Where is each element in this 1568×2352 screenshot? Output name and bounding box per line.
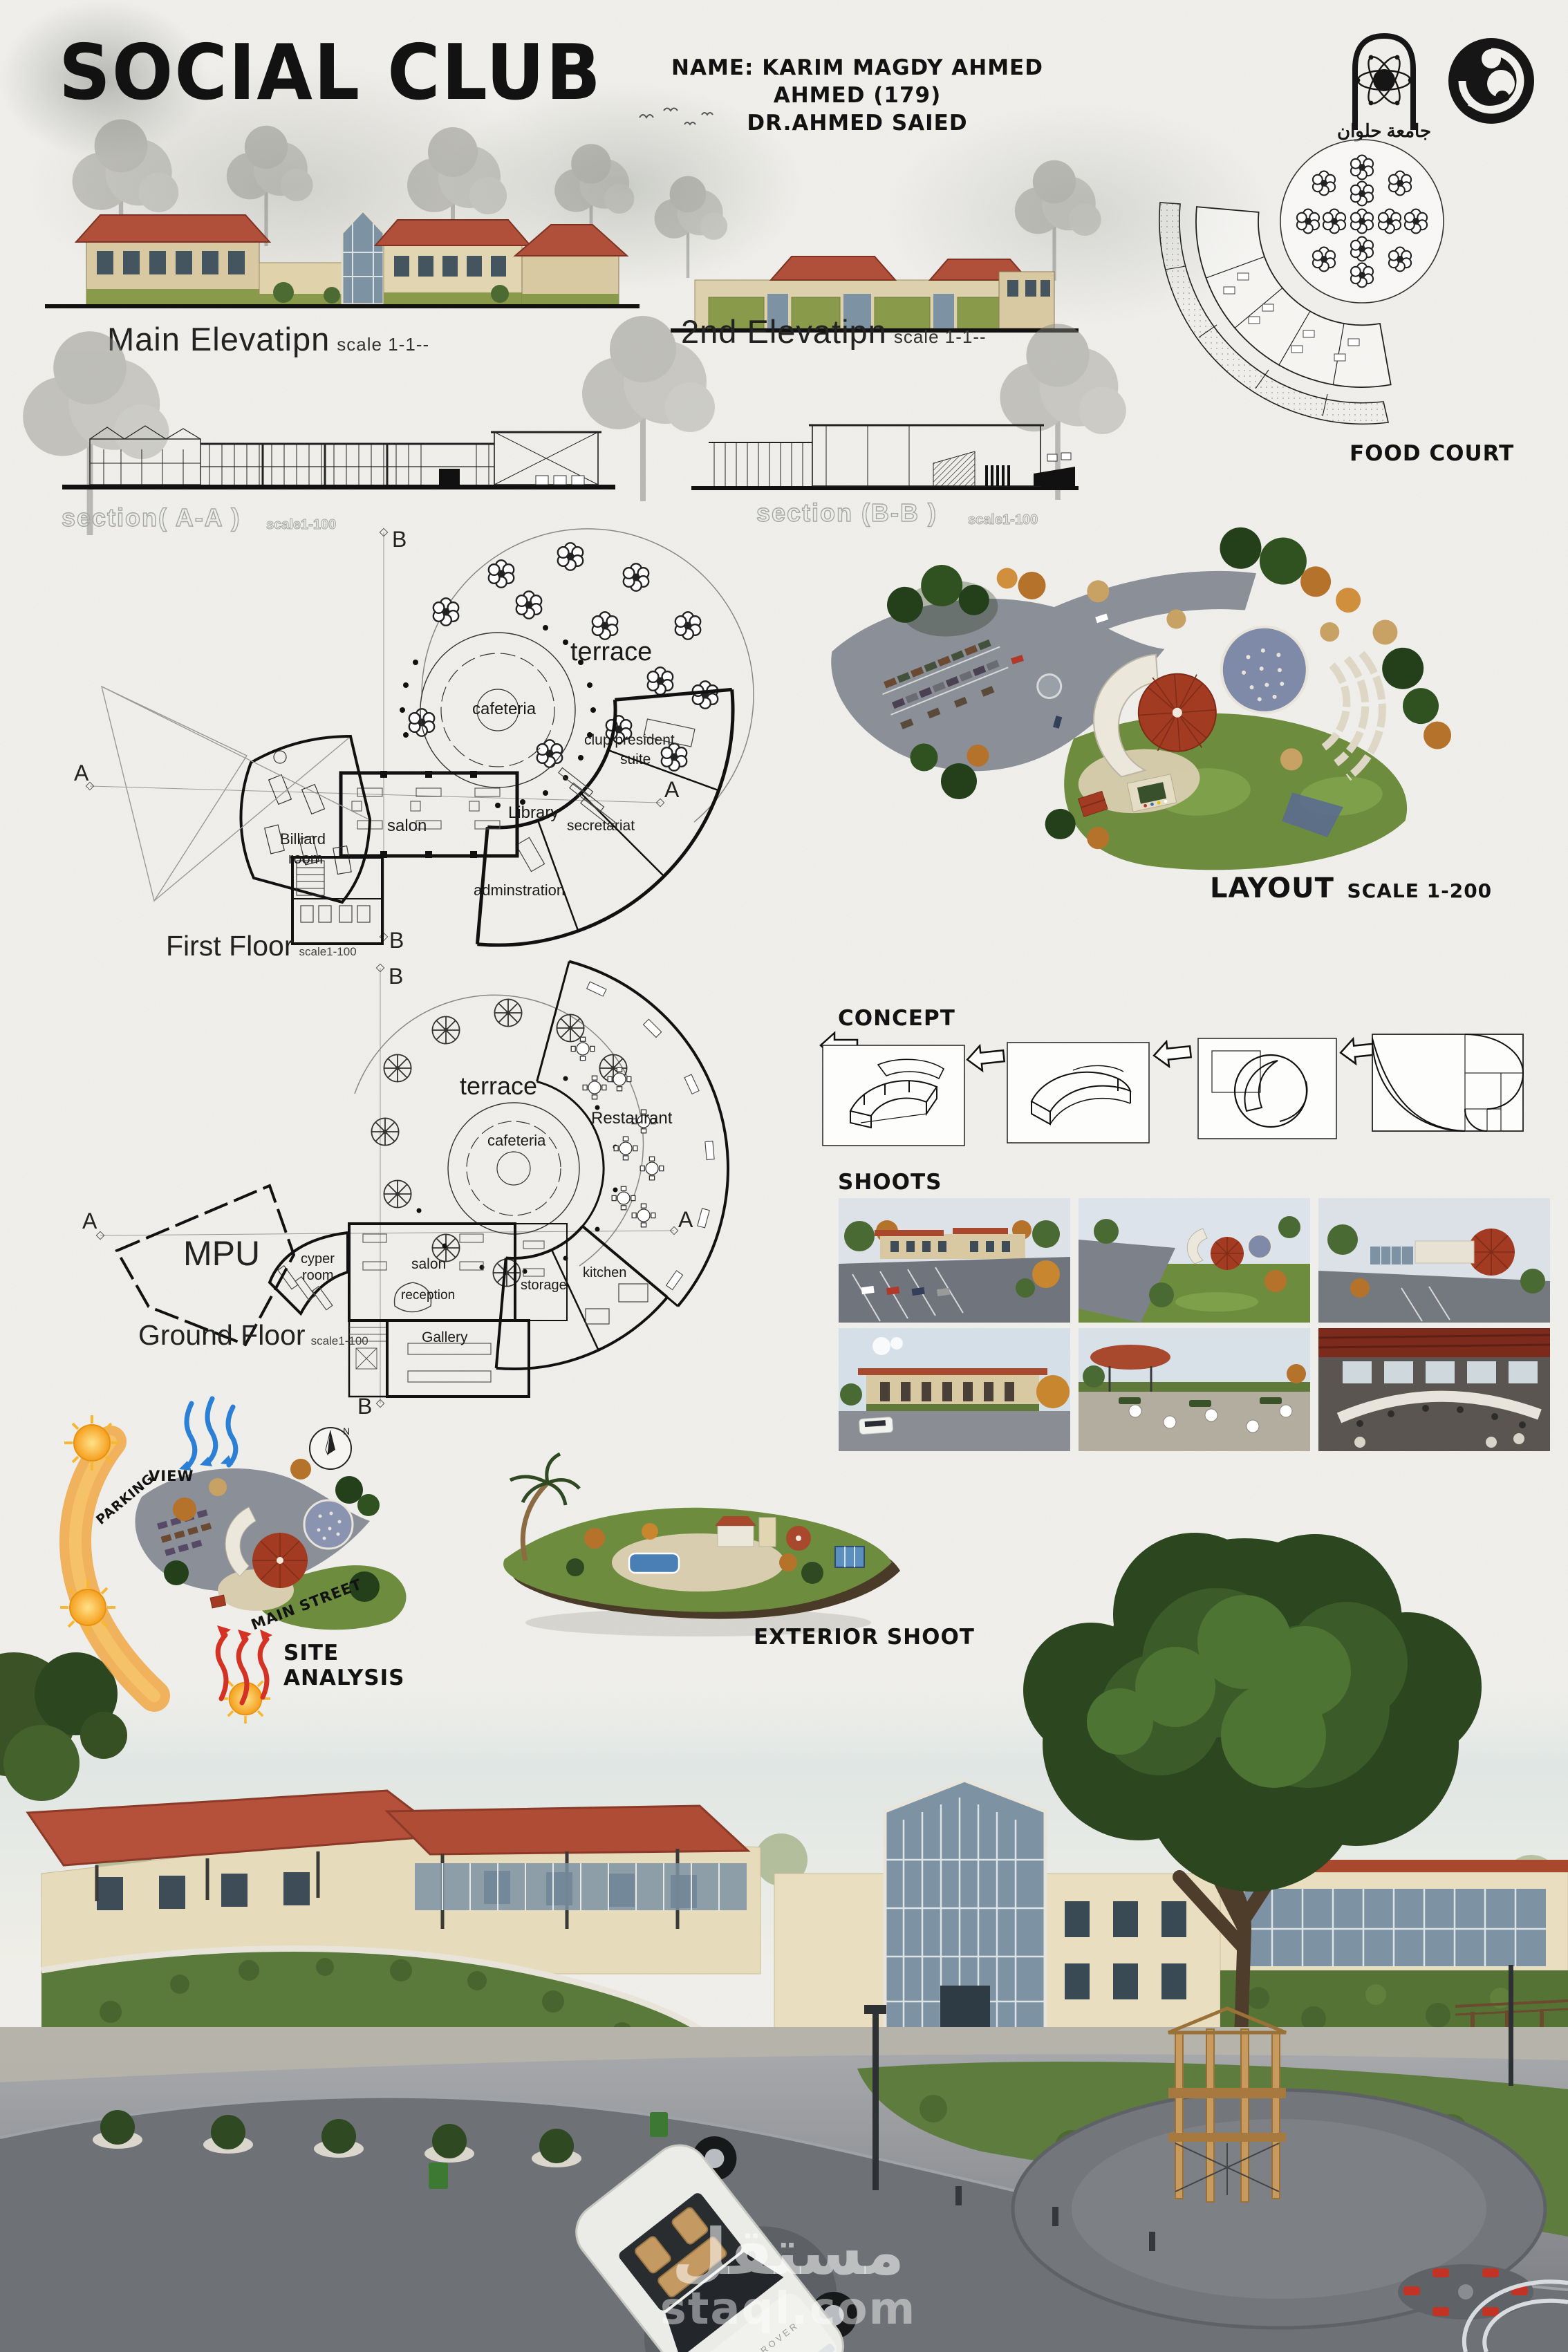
axis-label-a: A [82, 1208, 97, 1233]
watermark-arabic: مستقل [643, 2219, 933, 2286]
concept-step-3 [1007, 1043, 1149, 1143]
exterior-shoot-render [422, 1435, 920, 1642]
room-label-administration: adminstration [474, 881, 565, 899]
billiard-room [241, 736, 370, 902]
shoot-render-6 [1318, 1328, 1550, 1451]
room-label-president: clup president [584, 732, 675, 748]
shoot-render-2 [1079, 1198, 1310, 1323]
food-court-label: FOOD COURT [1350, 441, 1514, 466]
room-label-secretariat: secretariat [567, 818, 635, 834]
university-logo-icon: جامعة حلوان [1338, 26, 1431, 144]
watermark: مستقل staql.com [643, 2219, 933, 2333]
room-label-billiard: Billiard [280, 830, 326, 848]
cafeteria-ring [448, 1103, 579, 1234]
shoots-label: SHOOTS [838, 1170, 942, 1195]
room-label-mpu: MPU [183, 1234, 260, 1273]
trash-bin [650, 2112, 668, 2137]
svg-text:room: room [302, 1268, 334, 1283]
layout-label: LAYOUT SCALE 1-200 [1210, 872, 1492, 904]
concept-step-1-golden-spiral [1372, 1034, 1523, 1131]
salon-block [349, 1224, 567, 1397]
main-elevation-render [38, 128, 646, 321]
sun-icon [60, 1580, 115, 1635]
second-elevation-label: 2nd Elevatipnscale 1-1-- [681, 312, 987, 351]
site-analysis-diagram: N VIEW PARKING MAIN STREET SITE ANALYSIS [38, 1379, 467, 1732]
compass-icon: N [310, 1426, 351, 1469]
axis-label-a: A [74, 760, 89, 785]
tree-plaza-dome [1219, 624, 1310, 716]
ground-floor-label: Ground Floorscale1-100 [138, 1319, 368, 1352]
room-label-cafeteria: cafeteria [487, 1132, 546, 1149]
birds-sketch [636, 104, 719, 138]
shoot-render-1 [839, 1198, 1070, 1323]
fine-arts-logo-icon [1441, 31, 1542, 131]
concept-step-4 [823, 1045, 964, 1146]
room-label-salon: salon [411, 1256, 446, 1272]
axis-label-a: A [678, 1207, 693, 1232]
section-a-drawing [52, 401, 626, 512]
room-label-cyber: cyper [301, 1251, 335, 1267]
room-label-storage: storage [521, 1278, 567, 1293]
shoot-render-3 [1318, 1198, 1550, 1323]
sun-icon [64, 1415, 120, 1471]
terrace-boundary [422, 529, 754, 822]
mini-site-plan [135, 1459, 406, 1630]
shade-sail [102, 687, 368, 901]
axis-label-b: B [389, 928, 404, 953]
palm-fronds [510, 1454, 579, 1505]
pool [629, 1553, 679, 1573]
terrace-dots [417, 1076, 618, 1274]
trash-bin [429, 2163, 448, 2189]
watermark-latin: staql.com [643, 2286, 933, 2333]
room-label-terrace: terrace [460, 1072, 537, 1100]
room-label-gallery: Gallery [422, 1329, 468, 1345]
room-label-salon: salon [387, 816, 427, 835]
north-label: N [343, 1426, 350, 1437]
axis-label-a: A [664, 777, 680, 802]
spinner-ride [1398, 2264, 1533, 2320]
room-label-terrace: terrace [570, 637, 652, 666]
svg-text:suite: suite [620, 752, 651, 767]
site-analysis-label: SITE ANALYSIS [283, 1641, 467, 1690]
layout-render [809, 505, 1500, 906]
presentation-board: { "header": { "title": "SOCIAL CLUB", "n… [0, 0, 1568, 2352]
axis-label-b: B [389, 964, 403, 989]
room-label-library: Library [508, 803, 559, 822]
red-canopy-roof [387, 1806, 748, 1854]
kitchen-wing [496, 1226, 668, 1369]
room-label-restaurant: Restaurant [591, 1109, 673, 1128]
svg-text:room: room [288, 850, 323, 867]
page-title: SOCIAL CLUB [59, 28, 602, 117]
shoot-render-5 [1079, 1328, 1310, 1451]
shoot-render-4 [839, 1328, 1070, 1451]
section-b-drawing [688, 404, 1082, 512]
concept-step-2 [1198, 1038, 1336, 1139]
first-floor-plan: B B A A [73, 522, 736, 951]
concept-diagrams [819, 1030, 1531, 1155]
room-label-reception: reception [401, 1288, 455, 1303]
room-label-cafeteria: cafeteria [472, 700, 536, 718]
exterior-shoot-label: EXTERIOR SHOOT [754, 1625, 975, 1650]
concept-label: CONCEPT [838, 1006, 955, 1031]
main-elevation-label: Main Elevatipnscale 1-1-- [107, 320, 429, 358]
second-elevation-render [667, 156, 1082, 335]
room-label-kitchen: kitchen [583, 1265, 626, 1280]
food-court-plan [1127, 131, 1528, 463]
student-name: NAME: KARIM MAGDY AHMED AHMED (179) [643, 54, 1072, 109]
axis-label-b: B [392, 527, 407, 552]
